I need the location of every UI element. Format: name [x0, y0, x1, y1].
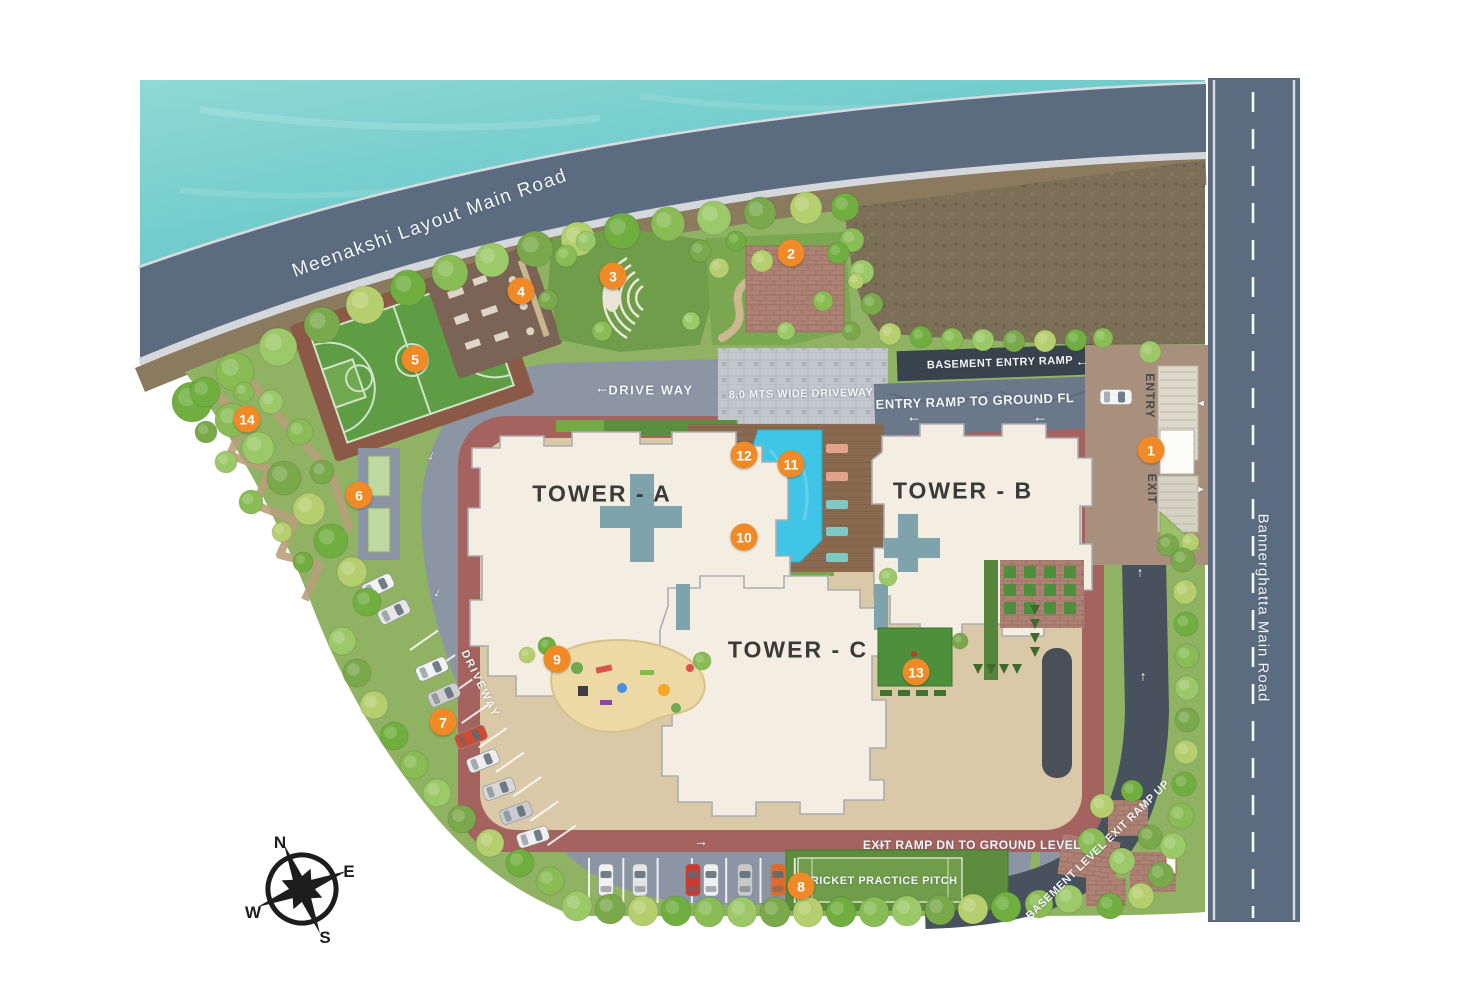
marker-4[interactable]: 4	[508, 278, 535, 305]
label-wide-driveway: 8.0 MTS WIDE DRIVEWAY	[729, 387, 874, 402]
gate-arrow-out: ►	[1197, 484, 1206, 494]
road-label-bannerghatta: Bannerghatta Main Road	[1255, 514, 1272, 703]
compass-south: S	[319, 928, 330, 948]
marker-5[interactable]: 5	[402, 346, 429, 373]
tower-label-b: TOWER - B	[893, 478, 1033, 505]
arrow-exit-road-up-2: ↑	[1140, 669, 1147, 684]
label-drive-way: DRIVE WAY	[608, 383, 693, 398]
ramp-down-pad	[1042, 648, 1072, 778]
tower-label-a: TOWER - A	[532, 481, 671, 508]
arrow-exit-ramp: →	[873, 835, 888, 852]
label-entry: ENTRY	[1143, 373, 1157, 418]
marker-14[interactable]: 14	[234, 406, 261, 433]
bannerghatta-road	[1208, 78, 1300, 922]
marker-13[interactable]: 13	[903, 659, 930, 686]
compass-rose	[242, 829, 362, 949]
marker-6[interactable]: 6	[346, 482, 373, 509]
arrow-basement-ramp: ←	[1075, 353, 1089, 368]
marker-12[interactable]: 12	[731, 442, 758, 469]
arrow-drive-way: ←	[595, 380, 610, 397]
marker-1[interactable]: 1	[1138, 437, 1165, 464]
arrow-entry-ramp-2: ←	[1033, 409, 1048, 426]
marker-3[interactable]: 3	[600, 263, 627, 290]
marker-11[interactable]: 11	[778, 451, 805, 478]
arrow-entry-ramp-1: ←	[907, 409, 922, 426]
tower-label-c: TOWER - C	[728, 637, 868, 664]
compass-west: W	[245, 903, 261, 923]
marker-9[interactable]: 9	[544, 646, 571, 673]
arrow-exit-road-up-1: ↑	[1137, 565, 1144, 580]
compass-east: E	[343, 862, 354, 882]
compass-star	[240, 827, 365, 952]
marker-10[interactable]: 10	[731, 524, 758, 551]
site-map-graphic	[0, 0, 1474, 987]
marker-8[interactable]: 8	[788, 873, 815, 900]
label-exit-ramp-dn: EXIT RAMP DN TO GROUND LEVEL	[863, 838, 1081, 852]
arrow-bottom-driveway: →	[694, 833, 708, 849]
label-cricket-pitch: CRICKET PRACTICE PITCH	[802, 875, 957, 887]
gate-arrow-in: ◄	[1197, 398, 1206, 408]
site-plan: Meenakshi Layout Main Road Bannerghatta …	[0, 0, 1474, 987]
label-exit: EXIT	[1145, 474, 1159, 505]
compass-north: N	[274, 833, 286, 853]
marker-2[interactable]: 2	[778, 240, 805, 267]
marker-7[interactable]: 7	[430, 709, 457, 736]
